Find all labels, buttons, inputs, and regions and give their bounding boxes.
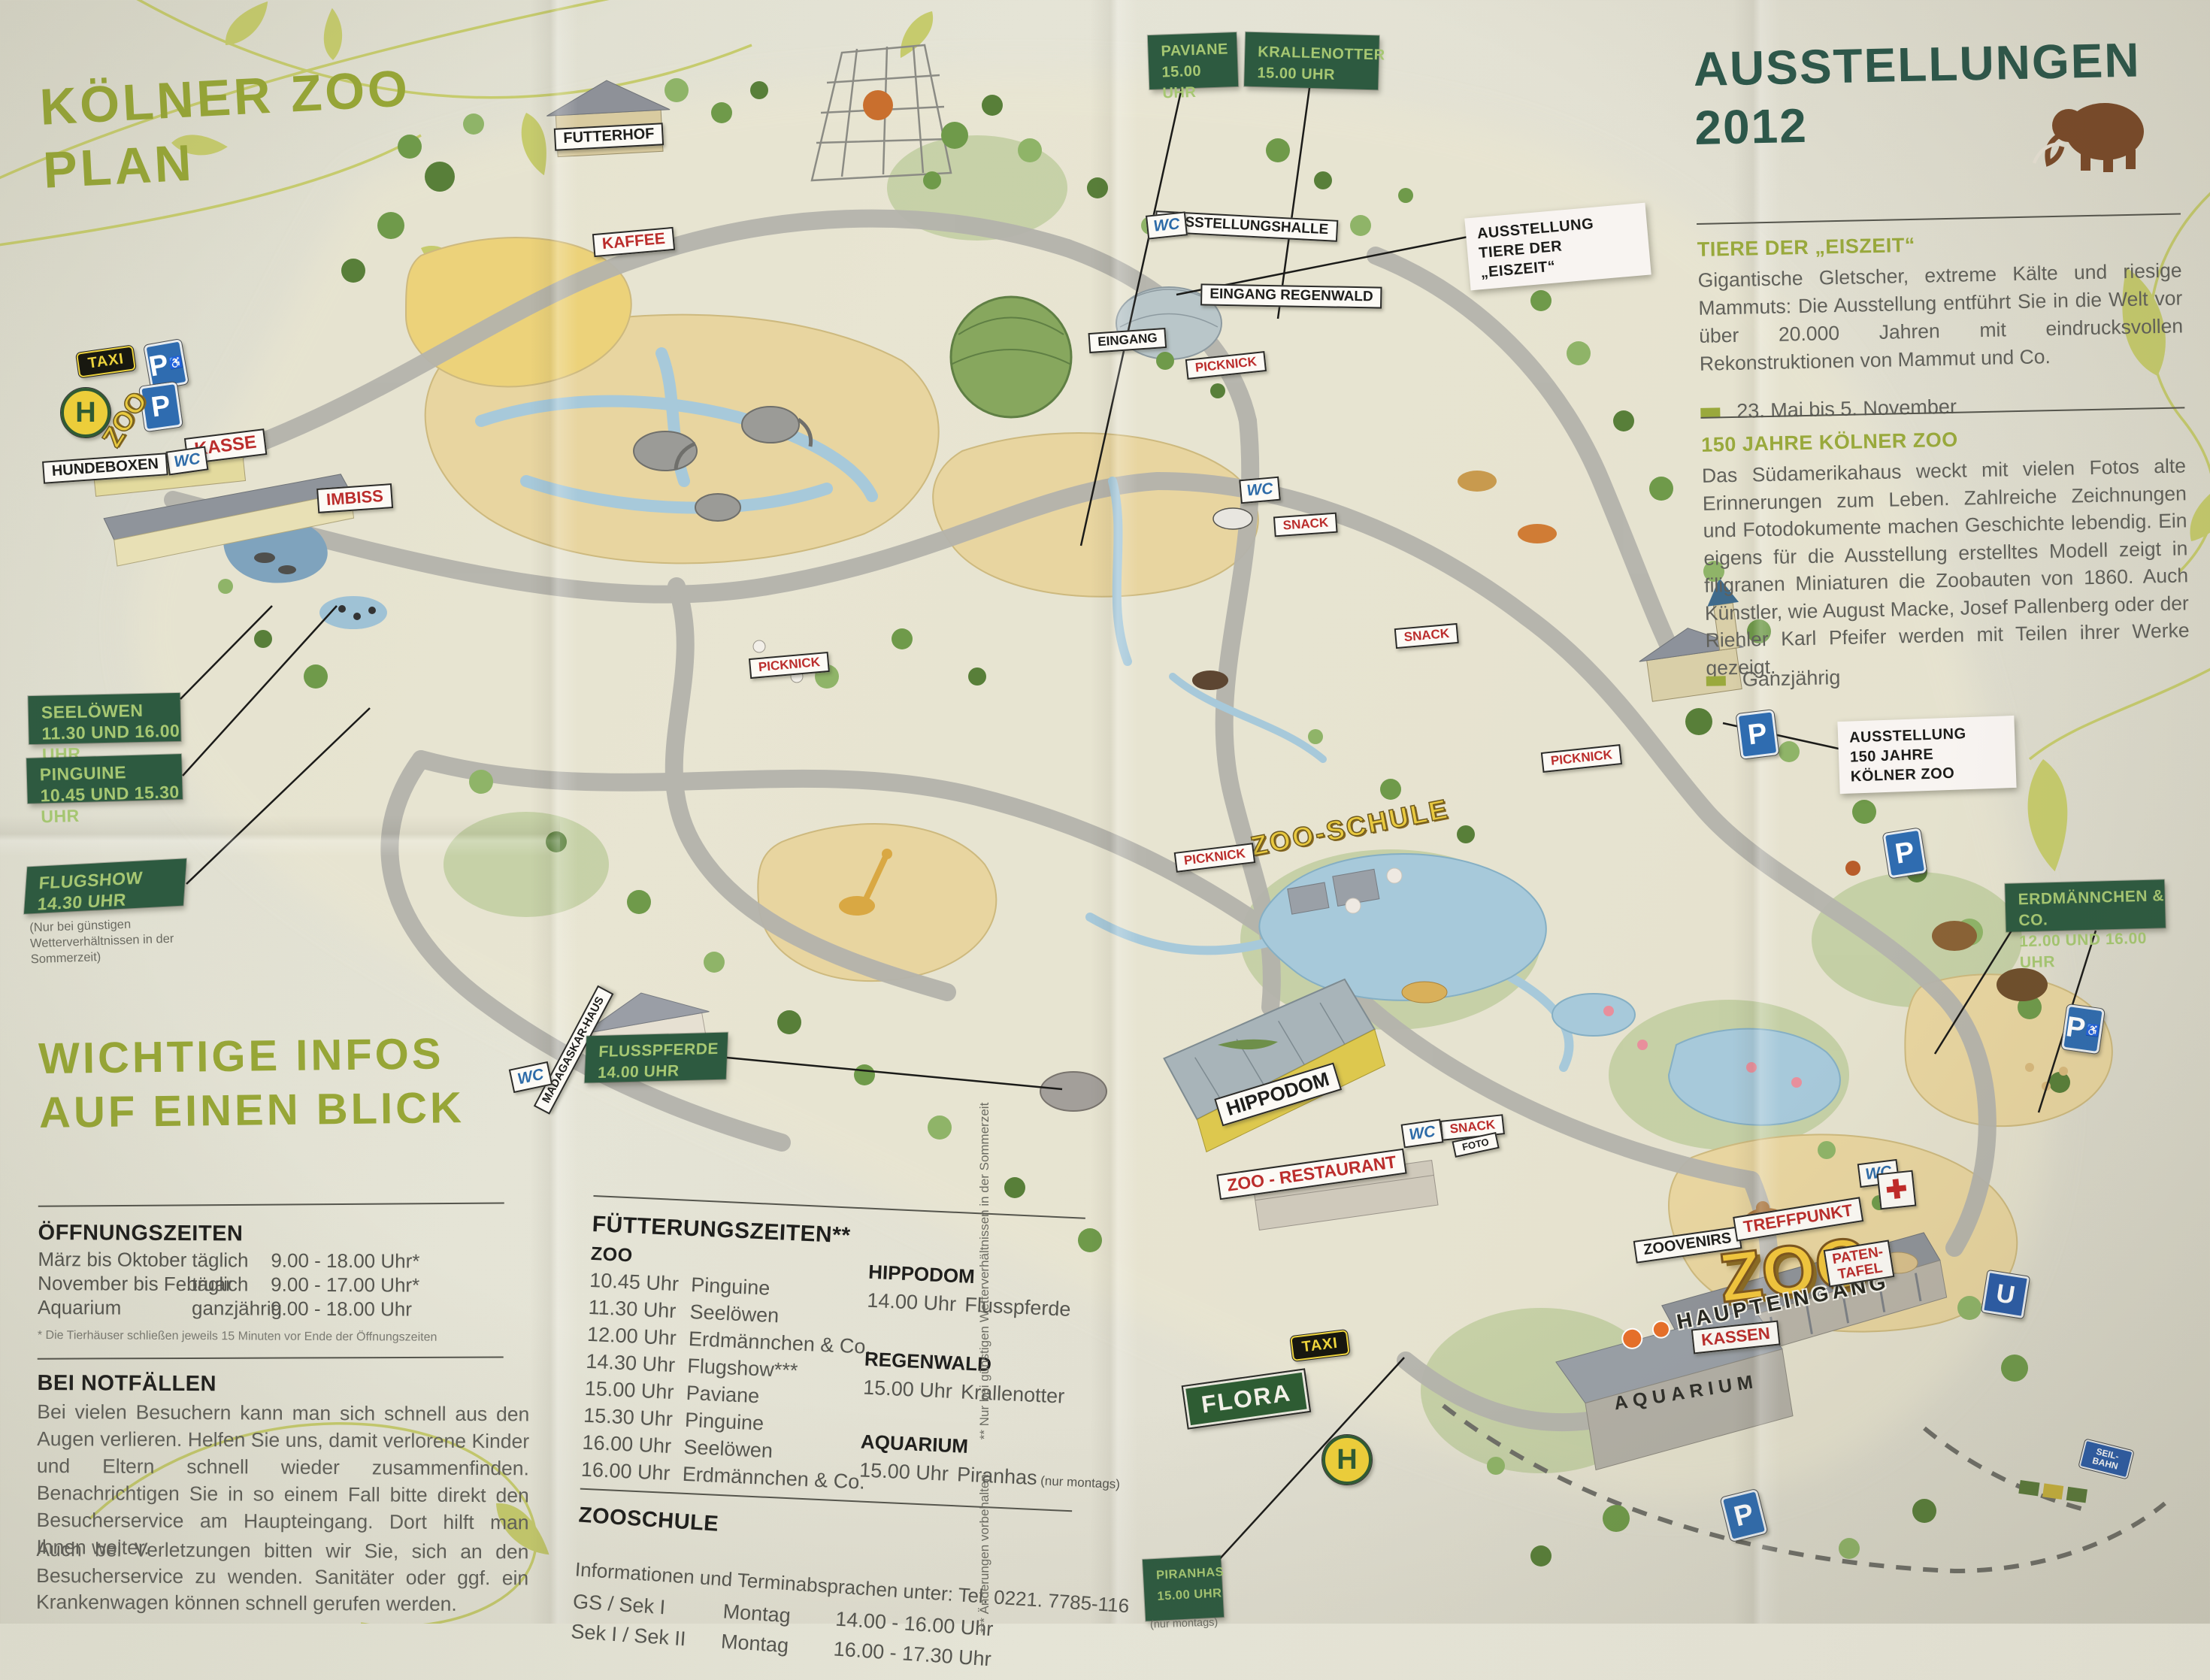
opening-row: März bis Oktobertäglich9.00 - 18.00 Uhr* xyxy=(38,1248,459,1250)
zooschule-title: ZOOSCHULE xyxy=(578,1503,1134,1565)
exhibitions-year: 2012 xyxy=(1694,98,1809,156)
feeding-time: 15.30 Uhr xyxy=(583,1404,686,1432)
emergency-para2: Auch bei Verletzungen bitten wir Sie, si… xyxy=(36,1536,529,1618)
info-heading-line2: AUF EINEN BLICK xyxy=(39,1081,465,1140)
zooschule-time: 14.00 - 16.00 Uhr xyxy=(835,1608,994,1641)
feeding-time: 16.00 Uhr xyxy=(582,1431,684,1459)
feeding-animal: Pinguine xyxy=(684,1409,764,1435)
feeding-col-title: HIPPODOM xyxy=(868,1261,976,1288)
opening-cell: 9.00 - 18.00 Uhr* xyxy=(271,1249,419,1273)
feeding-animal: Erdmännchen & Co. xyxy=(688,1327,871,1358)
opening-footnote: * Die Tierhäuser schließen jeweils 15 Mi… xyxy=(38,1329,437,1345)
feeding-animal: Erdmännchen & Co. xyxy=(682,1463,865,1494)
zooschule-day: Montag xyxy=(722,1600,837,1631)
feeding-animal: Paviane xyxy=(686,1382,760,1407)
zooschule-block: ZOOSCHULE Informationen und Terminabspra… xyxy=(573,1503,1134,1641)
feeding-animal: Pinguine xyxy=(691,1273,770,1300)
feeding-animal: Piranhas xyxy=(957,1463,1038,1489)
feeding-time: 14.30 Uhr xyxy=(586,1350,688,1378)
feeding-time: 14.00 Uhr xyxy=(867,1289,965,1317)
exhibitions-heading: AUSSTELLUNGEN xyxy=(1693,32,2141,97)
feeding-row: 15.30 UhrPinguine xyxy=(583,1404,764,1436)
feeding-animal: Seelöwen xyxy=(689,1300,780,1327)
feeding-time: 12.00 Uhr xyxy=(586,1323,689,1351)
feeding-panel: FÜTTERUNGSZEITEN** ZOO 10.45 UhrPinguine… xyxy=(573,1188,1104,1676)
opening-cell: ganzjährig xyxy=(192,1297,282,1321)
important-info-panel: WICHTIGE INFOS AUF EINEN BLICK ÖFFNUNGSZ… xyxy=(36,1028,535,1632)
feeding-time: 10.45 Uhr xyxy=(589,1269,692,1297)
feeding-animal: Krallenotter xyxy=(961,1380,1065,1407)
feeding-time: 11.30 Uhr xyxy=(588,1296,690,1324)
feeding-row: 10.45 UhrPinguine xyxy=(589,1269,770,1300)
feeding-col-row: 15.00 UhrKrallenotter xyxy=(863,1376,1065,1409)
opening-title: ÖFFNUNGSZEITEN xyxy=(38,1221,243,1246)
zooschule-time: 16.00 - 17.30 Uhr xyxy=(833,1637,992,1670)
info-heading: WICHTIGE INFOS AUF EINEN BLICK xyxy=(38,1027,465,1140)
opening-cell: täglich xyxy=(192,1273,248,1296)
feeding-note: (nur montags) xyxy=(1037,1473,1120,1491)
section-date-eiszeit: 23. Mai bis 5. November xyxy=(1700,395,1957,424)
feeding-time: 15.00 Uhr xyxy=(584,1377,686,1405)
feeding-col-title: AQUARIUM xyxy=(860,1430,968,1458)
exhibitions-panel: AUSSTELLUNGEN 2012 TIERE DER „EISZEIT“ G… xyxy=(1693,31,2197,792)
feeding-row: 16.00 UhrErdmännchen & Co. xyxy=(580,1458,865,1494)
feeding-time: 15.00 Uhr xyxy=(863,1376,961,1404)
opening-cell: 9.00 - 18.00 Uhr xyxy=(271,1297,412,1321)
feeding-time: 15.00 Uhr xyxy=(859,1458,958,1486)
panel-layer: KÖLNER ZOO PLAN AUSSTELLUNGEN 2012 TIERE… xyxy=(0,0,2210,1624)
vertical-footnote-b: ** Nur bei günstigen Wetterverhältnissen… xyxy=(977,1103,991,1440)
feeding-zoo-title: ZOO xyxy=(590,1243,633,1267)
zooschule-group: Sek I / Sek II xyxy=(571,1620,722,1653)
emergency-title: BEI NOTFÄLLEN xyxy=(37,1371,216,1397)
opening-cell: 9.00 - 17.00 Uhr* xyxy=(271,1273,419,1297)
section-title-eiszeit: TIERE DER „EISZEIT“ xyxy=(1697,234,1915,262)
section-title-150-jahre: 150 JAHRE KÖLNER ZOO xyxy=(1701,428,1958,457)
feeding-row: 16.00 UhrSeelöwen xyxy=(582,1431,773,1463)
page-title: KÖLNER ZOO PLAN xyxy=(38,56,415,202)
feeding-col-title: REGENWALD xyxy=(864,1348,991,1377)
section-body-eiszeit: Gigantische Gletscher, extreme Kälte und… xyxy=(1697,256,2184,377)
feeding-row: 15.00 UhrPaviane xyxy=(584,1377,760,1409)
zooschule-day: Montag xyxy=(720,1630,834,1660)
vertical-footnotes: *** Änderungen vorbehalten** Nur bei gün… xyxy=(977,1068,992,1633)
feeding-row: 11.30 UhrSeelöwen xyxy=(588,1296,780,1327)
divider xyxy=(38,1357,504,1360)
feeding-col-row: 14.00 UhrFlusspferde xyxy=(867,1289,1071,1321)
divider xyxy=(38,1202,504,1206)
section-date-150-jahre: Ganzjährig xyxy=(1706,666,1840,692)
feeding-animal: Seelöwen xyxy=(683,1436,773,1462)
zooschule-group: GS / Sek I xyxy=(572,1590,724,1623)
opening-cell: März bis Oktober xyxy=(38,1248,186,1272)
info-heading-line1: WICHTIGE INFOS xyxy=(38,1027,465,1086)
feeding-title: FÜTTERUNGSZEITEN** xyxy=(592,1212,851,1249)
feeding-animal: Flugshow*** xyxy=(687,1355,798,1382)
feeding-time: 16.00 Uhr xyxy=(580,1458,683,1486)
divider xyxy=(1697,213,2181,224)
opening-cell: täglich xyxy=(192,1249,248,1272)
opening-cell: Aquarium xyxy=(38,1296,121,1320)
section-body-150-jahre: Das Südamerikahaus weckt mit vielen Foto… xyxy=(1702,452,2190,681)
vertical-footnote-a: *** Änderungen vorbehalten xyxy=(977,1474,991,1633)
